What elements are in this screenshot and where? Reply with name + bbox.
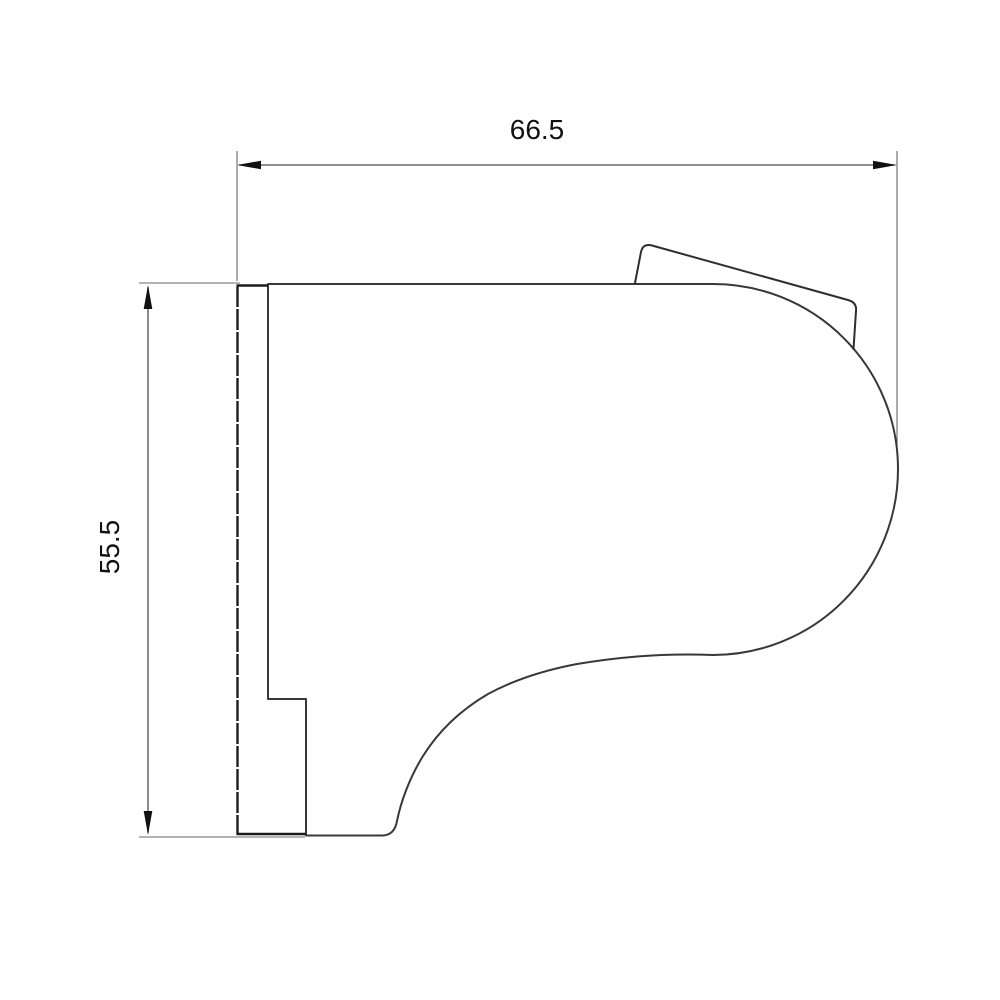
mounting-plate — [237, 286, 307, 835]
drawing-canvas: 66.5 55.5 — [0, 0, 1000, 1000]
width-dimension-label: 66.5 — [510, 114, 565, 145]
arrow-left-icon — [237, 161, 261, 170]
vertical-dimension: 55.5 — [94, 283, 305, 837]
arrow-down-icon — [144, 811, 153, 835]
height-dimension-label: 55.5 — [94, 520, 125, 575]
body-profile-path — [268, 284, 898, 836]
technical-drawing: 66.5 55.5 — [0, 0, 1000, 1000]
part-outline — [237, 245, 899, 836]
arrow-right-icon — [873, 161, 897, 170]
arrow-up-icon — [144, 285, 153, 309]
top-tab-path — [635, 245, 856, 349]
